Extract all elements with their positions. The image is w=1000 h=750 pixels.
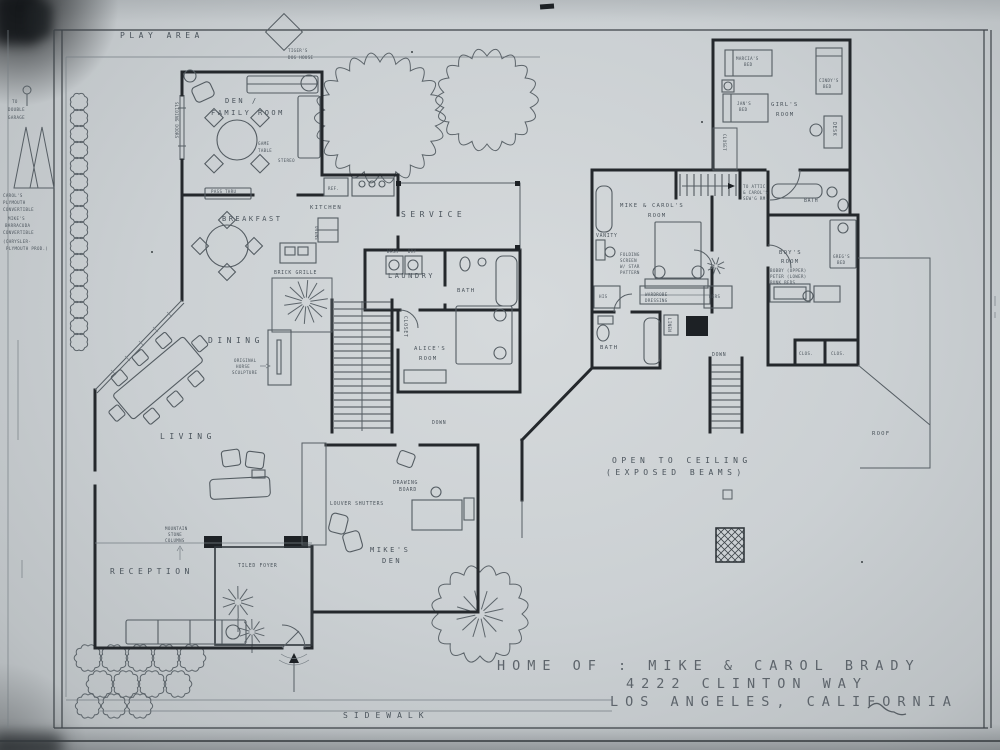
reception-furniture [126, 546, 246, 644]
label-vanity: VANITY [596, 233, 618, 239]
label-clos-1: CLOS. [799, 351, 813, 356]
label-down-2f: DOWN [712, 352, 726, 358]
mike-car-line1: MIKE'S [8, 216, 25, 221]
louver-shutter-divider [302, 443, 326, 545]
shrub-cluster-bottom [74, 645, 206, 718]
label-alice-line2: ROOM [419, 356, 437, 362]
label-girls-room-1: GIRL'S [771, 102, 798, 108]
label-screen-1: FOLDING [620, 252, 640, 257]
garage-note-line3: GARAGE [8, 115, 25, 120]
label-alice-line1: ALICE'S [414, 346, 446, 352]
label-columns-2: STONE [168, 532, 182, 537]
label-wash: WASH [387, 249, 398, 254]
label-dressing: DRESSING [645, 298, 668, 303]
label-greg-1: GREG'S [833, 254, 850, 259]
second-floor-plan: ROOF [522, 40, 930, 562]
label-den-line2: FAMILY ROOM [211, 109, 285, 117]
den-furniture [184, 70, 320, 199]
label-cindy-2: BED [823, 84, 832, 89]
title-block: HOME OF : MIKE & CAROL BRADY 4222 CLINTO… [497, 658, 958, 710]
label-doghouse-line1: TIGER'S [288, 48, 308, 53]
carol-car-symbol [14, 127, 38, 188]
label-sculpture-1: ORIGINAL [234, 358, 257, 363]
label-foyer: TILED FOYER [238, 563, 277, 569]
title-line2: 4222 CLINTON WAY [626, 676, 868, 692]
label-ovens: OVENS [314, 226, 319, 240]
label-drawing-board-1: DRAWING [393, 480, 418, 486]
maker-note-line2: PLYMOUTH PROD.) [6, 246, 48, 251]
label-game-table-2: TABLE [258, 148, 272, 153]
label-sculpture-2: HORSE [236, 364, 250, 369]
label-shared-bath: BATH [804, 198, 818, 204]
carol-car-line2: PLYMOUTH [3, 200, 26, 205]
alice-room-furniture [400, 306, 512, 383]
mike-car-line3: CONVERTIBLE [3, 230, 34, 235]
label-bunk-2: PETER (LOWER) [770, 274, 807, 279]
label-pass-thru: PASS THRU [211, 189, 237, 194]
label-attic-2: & CAROL'S [743, 190, 769, 195]
label-dining: DINING [208, 336, 264, 345]
label-bunk-3: BUNK BEDS [770, 280, 796, 285]
bath-fixtures [460, 256, 517, 306]
label-game-table-1: GAME [258, 141, 269, 146]
label-attic-3: SEW'G RM. [743, 196, 768, 201]
label-clos-2: CLOS. [831, 351, 845, 356]
label-greg-2: BED [837, 260, 846, 265]
label-bath-1f: BATH [457, 288, 475, 294]
tree-large [315, 53, 446, 183]
dog-house-symbol [266, 14, 303, 51]
entry-walk [279, 625, 309, 692]
label-ref: REF. [328, 186, 339, 191]
label-marcia-1: MARCIA'S [736, 56, 759, 61]
label-screen-3: W/ STAR [620, 264, 640, 269]
label-kitchen: KITCHEN [310, 205, 342, 211]
plant-burst-1 [223, 586, 254, 618]
label-sidewalk: SIDEWALK [343, 711, 430, 720]
label-marcia-2: BED [744, 62, 753, 67]
label-wardrobe: WARDROBE [645, 292, 668, 297]
label-boys-room-2: ROOM [781, 259, 799, 265]
tree-flower [432, 566, 528, 662]
label-jan-2: BED [739, 107, 748, 112]
garage-note-line1: TO [12, 99, 18, 104]
label-dry: DRY [408, 249, 417, 254]
open-ceiling-area [716, 490, 744, 562]
main-staircase [334, 301, 391, 431]
label-roof: ROOF [872, 431, 890, 437]
tree-small [436, 49, 539, 150]
label-girls-room-2: ROOM [776, 112, 794, 118]
label-jan-1: JAN'S [737, 101, 751, 106]
hedge-row-left [70, 93, 87, 350]
label-mikes-den-2: DEN [382, 557, 402, 565]
label-service: SERVICE [401, 210, 466, 219]
label-screen-4: PATTERN [620, 270, 640, 275]
label-grille: BRICK GRILLE [274, 270, 317, 276]
garage-note-line2: DOUBLE [8, 107, 25, 112]
label-closet-girls: CLOSET [722, 134, 727, 151]
label-drawing-board-2: BOARD [399, 487, 417, 493]
mike-car-symbol [30, 127, 54, 188]
label-linen: LINEN [667, 318, 672, 332]
tree-flower-burst [457, 591, 504, 638]
maker-note-line1: (CHRYSLER- [3, 239, 31, 244]
title-line3: LOS ANGELES, CALIFORNIA [610, 694, 958, 710]
label-down-1f: DOWN [432, 420, 446, 426]
label-master-bath: BATH [600, 345, 618, 351]
carol-car-line3: CONVERTIBLE [3, 207, 34, 212]
sculpture-pedestal [260, 330, 291, 385]
roof-outline: ROOF [858, 258, 930, 468]
title-line1: HOME OF : MIKE & CAROL BRADY [497, 658, 921, 674]
label-open-ceiling-2: (EXPOSED BEAMS) [606, 468, 746, 477]
label-reception: RECEPTION [110, 567, 194, 576]
shared-bath-fixtures [772, 184, 848, 211]
label-sliding-doors: SLIDING DOORS [174, 102, 179, 139]
blueprint-photo: TO DOUBLE GARAGE CAROL'S PLYMOUTH CONVER… [0, 0, 1000, 750]
label-breakfast: BREAKFAST [222, 215, 282, 223]
label-columns-3: COLUMNS [165, 538, 185, 543]
label-cindy-1: CINDY'S [819, 78, 839, 83]
label-his: HIS [599, 294, 608, 299]
carol-car-line1: CAROL'S [3, 193, 23, 198]
label-master-1: MIKE & CAROL'S [620, 203, 684, 209]
plant-burst-2 [240, 619, 265, 645]
first-floor-plan: DEN / FAMILY ROOM GAME TABLE STEREO SLID… [91, 70, 520, 692]
upper-landing-stairs [677, 174, 739, 196]
label-louver-shutters: LOUVER SHUTTERS [330, 501, 384, 507]
mike-car-line2: BARRACUDA [5, 223, 31, 228]
label-attic-1: TO ATTIC [743, 184, 766, 189]
label-master-2: ROOM [648, 213, 666, 219]
bbq-grille [272, 278, 332, 332]
carport-margin: TO DOUBLE GARAGE CAROL'S PLYMOUTH CONVER… [3, 86, 54, 578]
dining-furniture [91, 314, 225, 442]
label-screen-2: SCREEN [620, 258, 637, 263]
label-den-line1: DEN / [225, 97, 259, 105]
label-boys-room-1: BOY'S [779, 250, 802, 256]
chimney-block [686, 316, 708, 336]
living-furniture [210, 449, 271, 500]
stairwell-down [711, 360, 741, 430]
label-desk: DESK [831, 122, 837, 136]
label-doghouse-line2: DOG HOUSE [288, 55, 314, 60]
floor-plan-drawing: TO DOUBLE GARAGE CAROL'S PLYMOUTH CONVER… [0, 0, 1000, 750]
label-laundry: LAUNDRY [388, 272, 435, 280]
label-mikes-den-1: MIKE'S [370, 546, 410, 554]
label-closet-alice: CLOSET [402, 316, 408, 338]
label-play-area: PLAY AREA [120, 31, 204, 40]
label-columns-1: MOUNTAIN [165, 526, 188, 531]
label-open-ceiling-1: OPEN TO CEILING [612, 456, 752, 465]
label-hers: HERS [709, 294, 720, 299]
label-bunk-1: BOBBY (UPPER) [770, 268, 807, 273]
master-bath-fixtures [597, 315, 678, 364]
label-sculpture-3: SCULPTURE [232, 370, 258, 375]
label-living: LIVING [160, 432, 216, 441]
label-stereo: STEREO [278, 158, 295, 163]
